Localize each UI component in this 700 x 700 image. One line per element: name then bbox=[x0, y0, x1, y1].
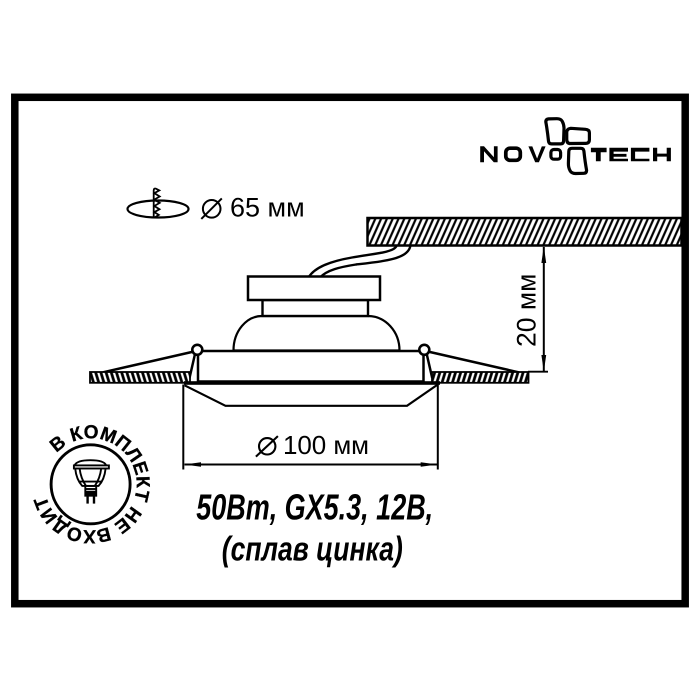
svg-text:65 мм: 65 мм bbox=[230, 193, 305, 223]
svg-text:(сплав цинка): (сплав цинка) bbox=[222, 531, 403, 569]
svg-text:50Вm, GX5.3, 12В,: 50Вm, GX5.3, 12В, bbox=[196, 487, 433, 528]
svg-text:20 мм: 20 мм bbox=[512, 274, 542, 347]
svg-text:100 мм: 100 мм bbox=[283, 430, 369, 460]
